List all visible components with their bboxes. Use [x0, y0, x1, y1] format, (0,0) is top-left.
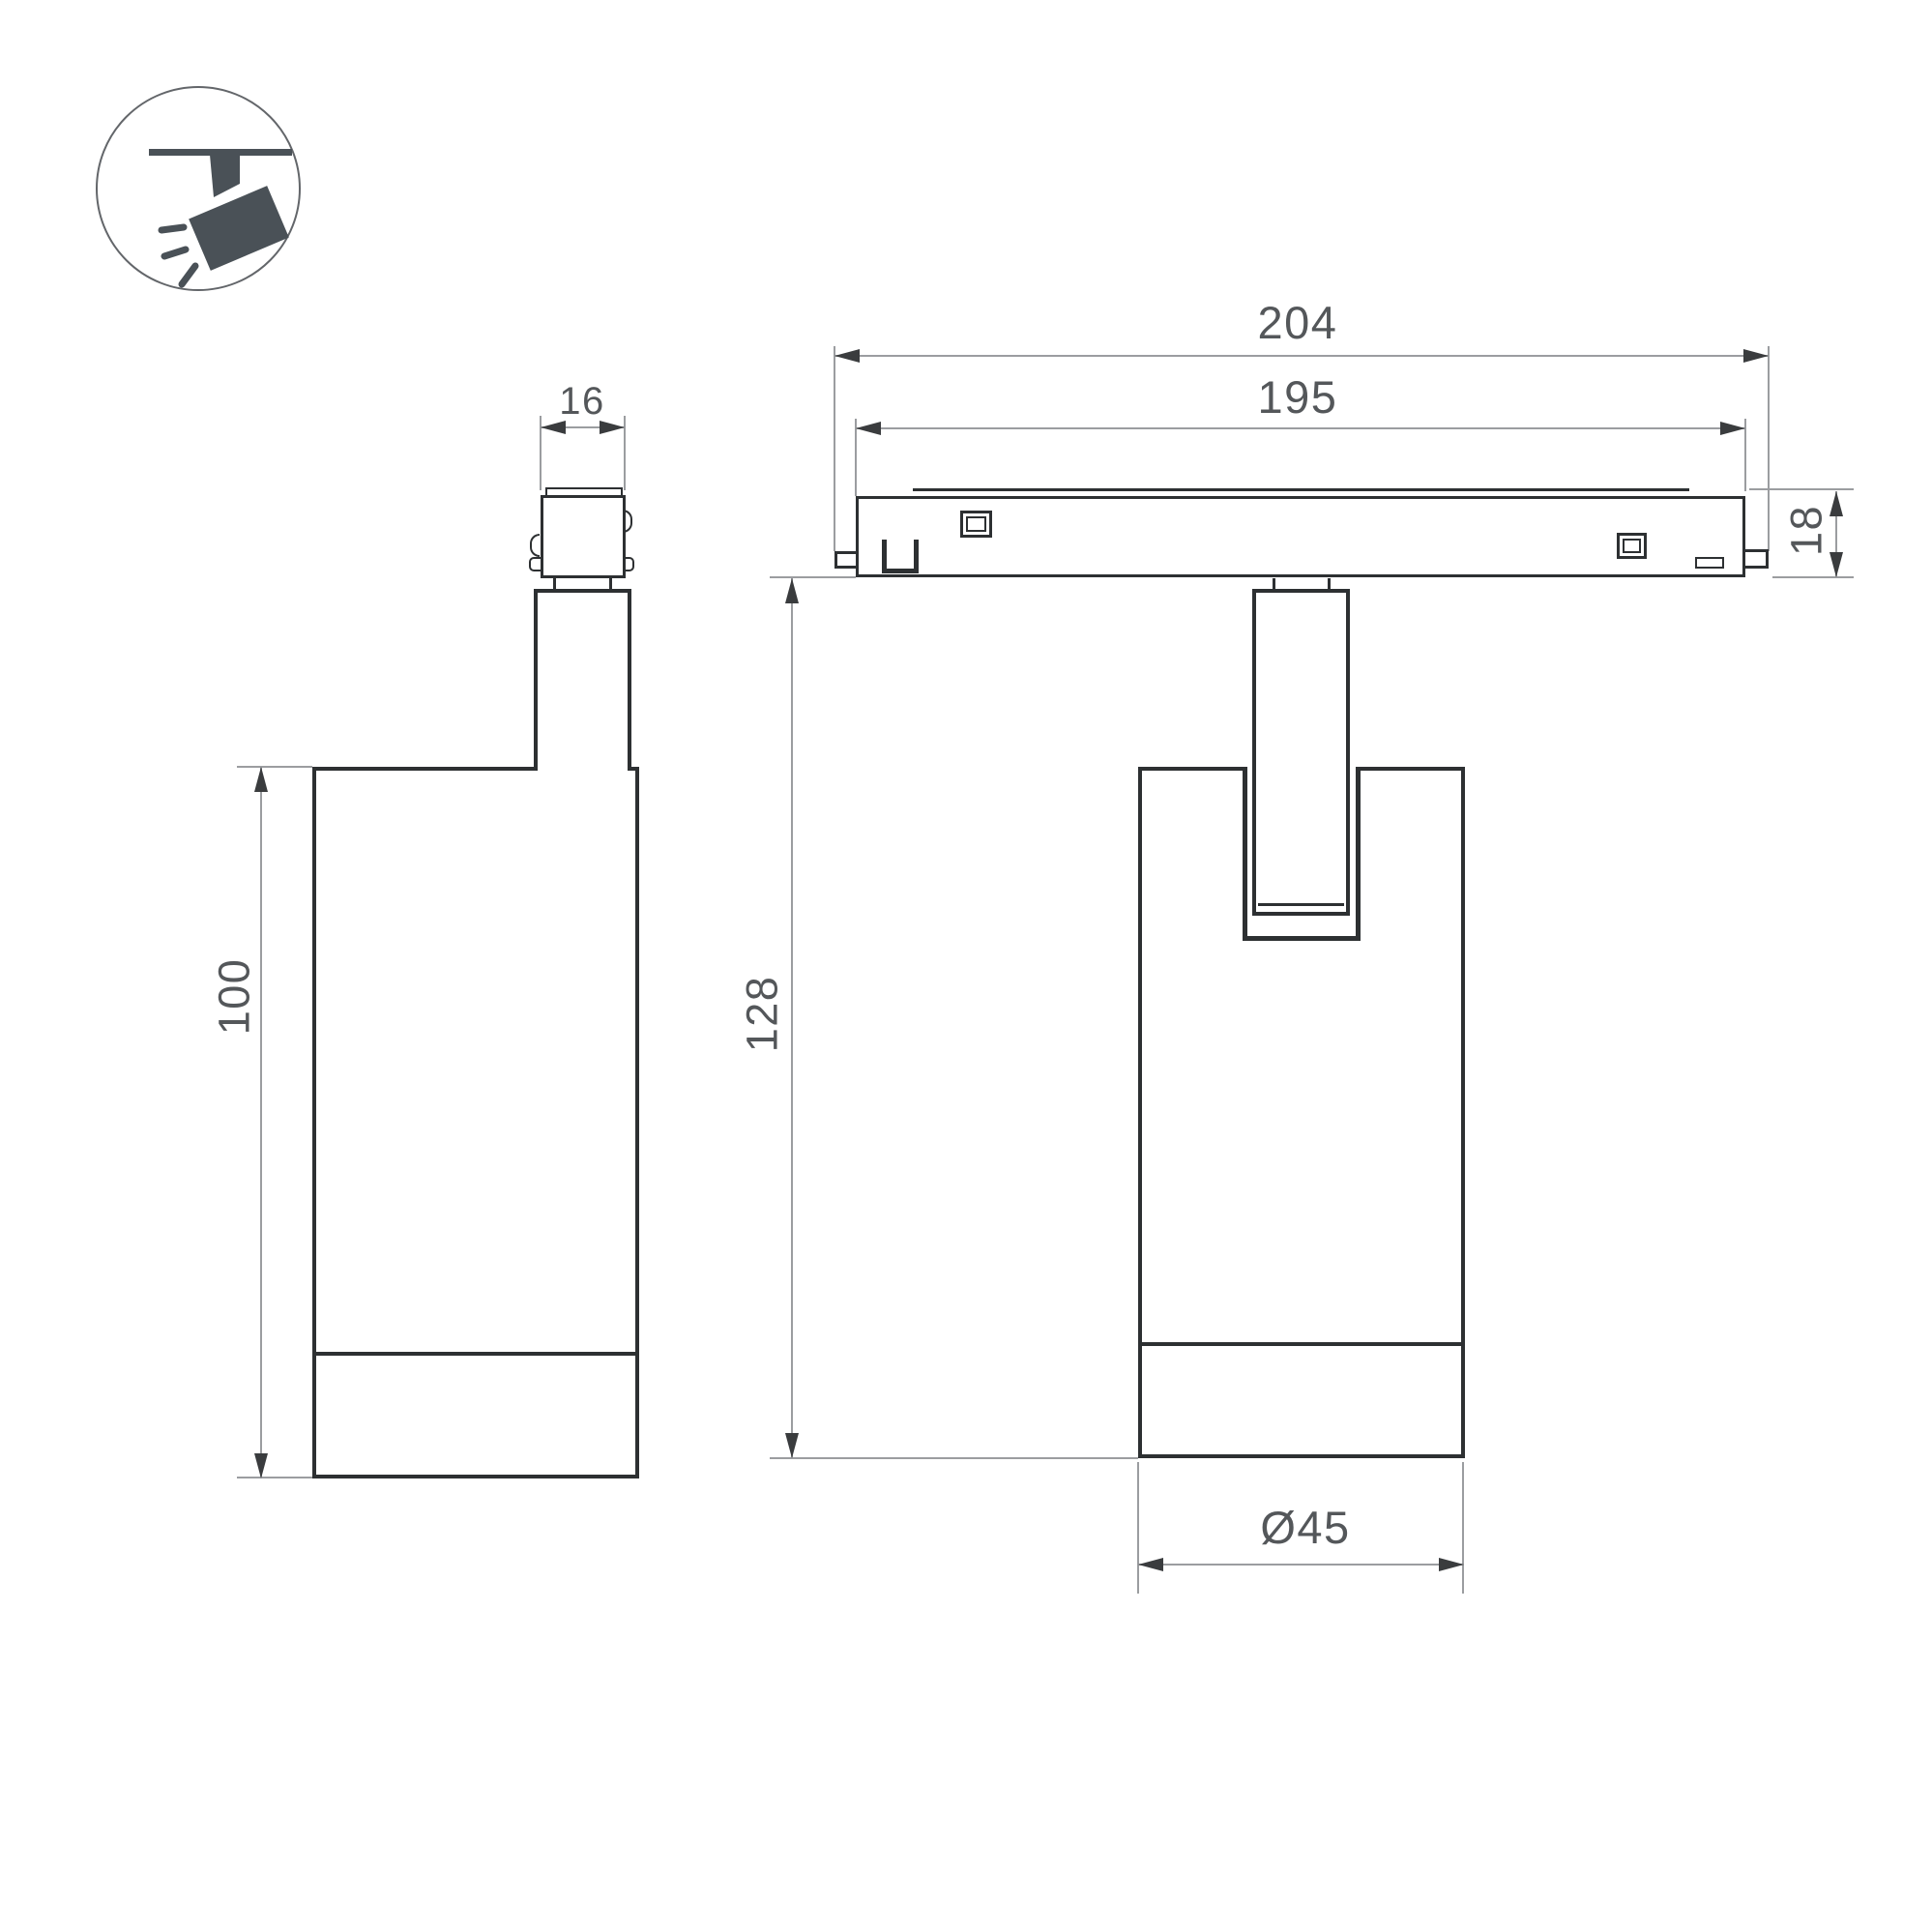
- front-track-hole-left: [960, 511, 992, 538]
- dim-45-line: [1138, 1564, 1464, 1566]
- dim-204-ext-left: [834, 346, 835, 551]
- side-track-adapter: [541, 495, 626, 578]
- front-track-u-clip: [882, 540, 919, 573]
- dimension-drawing-canvas: 16 100 204 195 18: [0, 0, 1932, 1932]
- front-stem: [1252, 589, 1350, 916]
- dim-195-arrow-right: [1720, 422, 1745, 435]
- icon-ray-1: [161, 227, 184, 230]
- dim-204-arrow-left: [834, 349, 860, 363]
- dim-128-line: [791, 578, 793, 1458]
- dim-204-ext-right: [1768, 346, 1770, 551]
- dim-128-ext-bottom: [770, 1457, 1138, 1459]
- dim-45-ext-right: [1462, 1462, 1464, 1594]
- icon-track-bar: [149, 149, 292, 156]
- front-track-hole-left-inner: [966, 516, 986, 532]
- dim-100-label: 100: [212, 920, 257, 1074]
- dim-100-line: [260, 767, 262, 1478]
- dim-100-ext-top: [237, 766, 312, 768]
- dim-16-label: 16: [534, 379, 630, 424]
- front-track-hole-right: [1617, 533, 1647, 559]
- dim-195-arrow-left: [856, 422, 881, 435]
- front-track-hole-right-inner: [1623, 539, 1641, 553]
- dim-128-arrow-top: [785, 578, 799, 603]
- side-adapter-clip-left: [530, 534, 540, 557]
- dim-18-arrow-top: [1830, 491, 1843, 516]
- dim-195-label: 195: [1201, 374, 1394, 420]
- dim-100-arrow-bottom: [254, 1453, 268, 1478]
- dim-204-label: 204: [1201, 300, 1394, 345]
- dim-204-line: [834, 355, 1769, 357]
- dim-45-label: Ø45: [1209, 1505, 1402, 1550]
- dim-45-arrow-left: [1138, 1558, 1163, 1571]
- dim-100-ext-bottom: [237, 1477, 312, 1478]
- dim-45-arrow-right: [1439, 1558, 1464, 1571]
- front-track-top-lip: [913, 488, 1689, 491]
- dim-128-arrow-bottom: [785, 1433, 799, 1458]
- dim-128-label: 128: [740, 927, 785, 1101]
- front-body-ring-line: [1142, 1342, 1461, 1346]
- dim-45-ext-left: [1137, 1462, 1139, 1594]
- dim-204-arrow-right: [1743, 349, 1769, 363]
- dim-18-label: 18: [1784, 483, 1830, 579]
- side-body-ring-line: [316, 1352, 635, 1356]
- side-body: [312, 767, 639, 1478]
- front-stem-bottom-line: [1258, 903, 1344, 906]
- track-spotlight-icon: [94, 84, 303, 293]
- side-stem: [534, 589, 631, 771]
- icon-circle: [97, 87, 300, 290]
- dim-128-ext-top: [770, 576, 856, 578]
- dim-100-arrow-top: [254, 767, 268, 792]
- front-track-slot-detail: [1695, 557, 1724, 569]
- dim-18-arrow-bottom: [1830, 552, 1843, 577]
- dim-195-line: [856, 427, 1745, 429]
- front-track-tab-right: [1742, 549, 1769, 569]
